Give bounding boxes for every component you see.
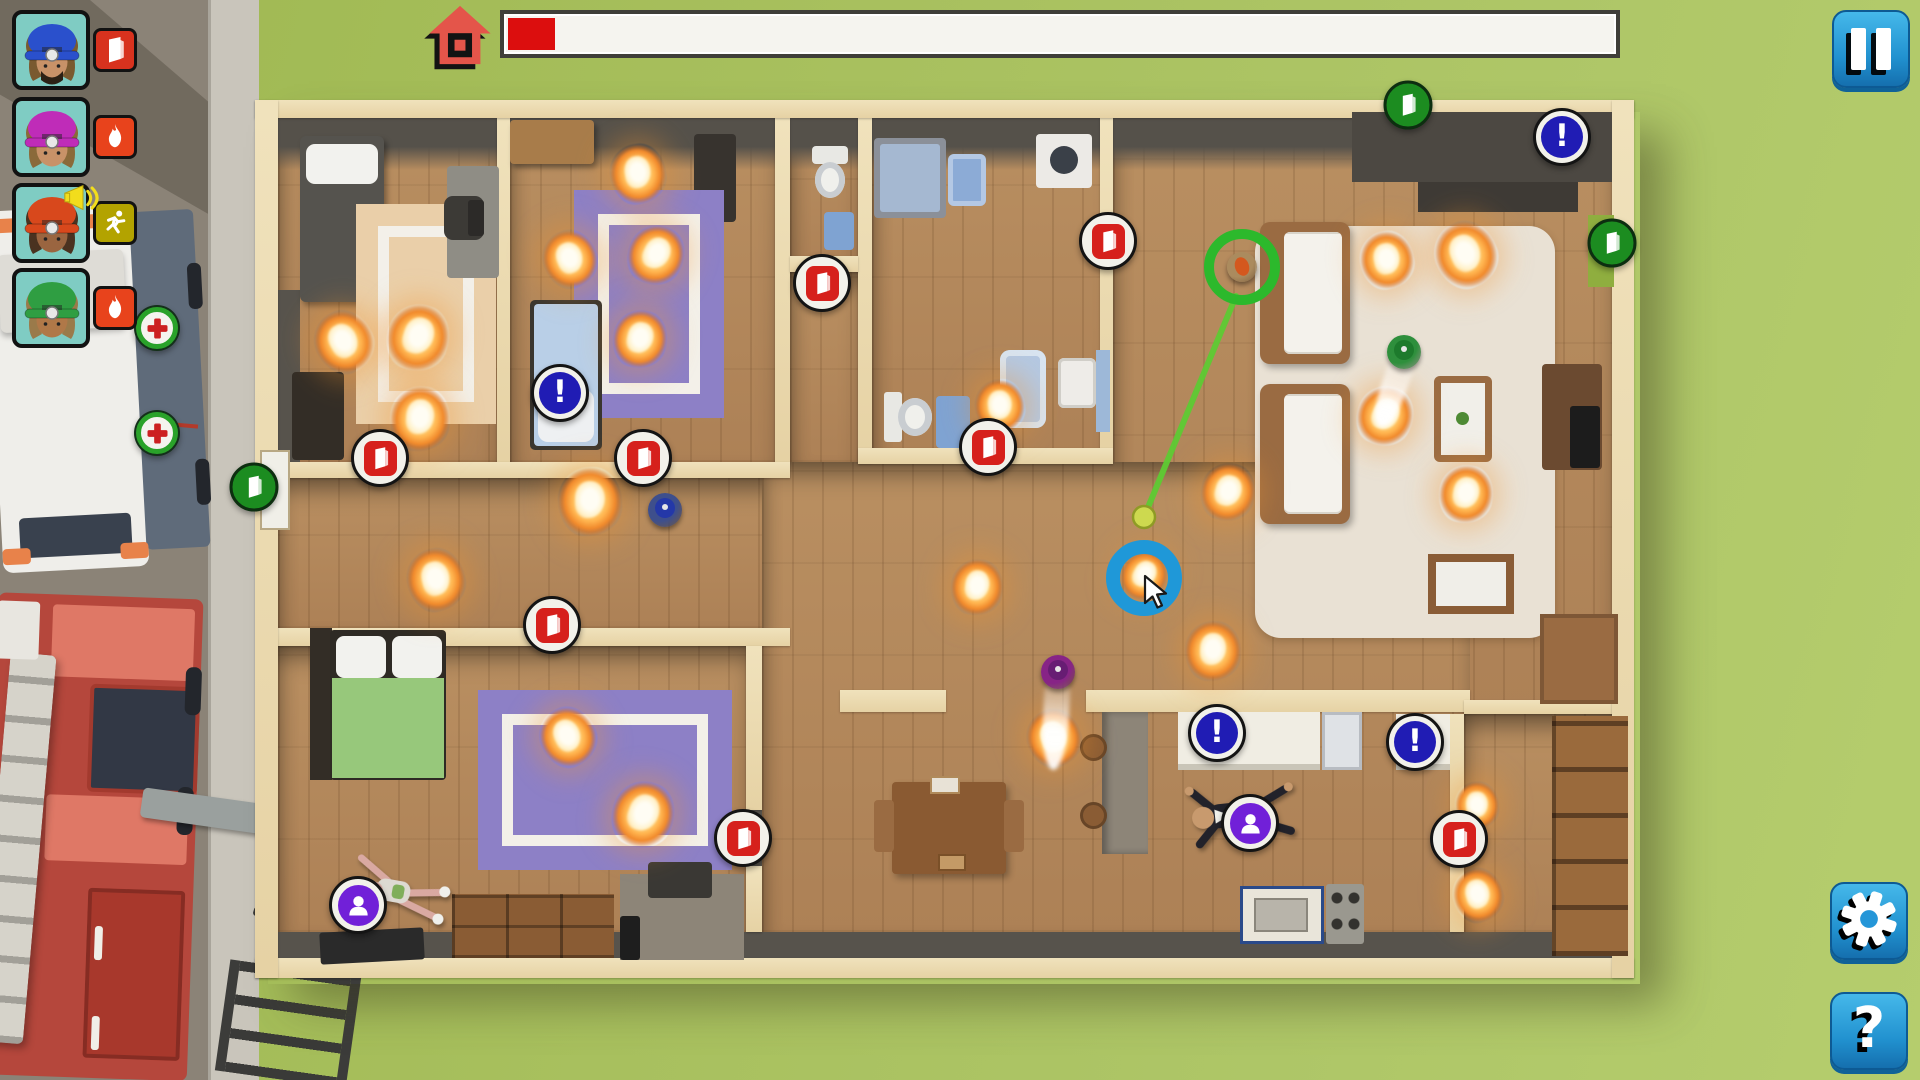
door-status-badge <box>93 28 137 72</box>
blocked-door-marker[interactable] <box>793 254 851 312</box>
pause-icon <box>1851 28 1891 70</box>
crew-portrait-4[interactable] <box>12 268 90 348</box>
ambulance-slot-marker[interactable] <box>136 307 178 349</box>
blocked-door-marker[interactable] <box>714 809 772 867</box>
crew-portrait-1[interactable] <box>12 10 90 90</box>
help-button[interactable]: ? <box>1830 992 1908 1070</box>
markers-layer: !!!! <box>0 0 1920 1080</box>
flame-status-badge <box>93 286 137 330</box>
alert-marker[interactable]: ! <box>531 364 589 422</box>
blocked-door-marker[interactable] <box>1430 810 1488 868</box>
blocked-door-marker[interactable] <box>1079 212 1137 270</box>
game-stage: !!!! <box>0 0 1920 1080</box>
alert-marker[interactable]: ! <box>1386 713 1444 771</box>
settings-button[interactable] <box>1830 882 1908 960</box>
gear-icon <box>1839 889 1899 953</box>
alert-marker[interactable]: ! <box>1533 108 1591 166</box>
victim-marker[interactable] <box>329 876 387 934</box>
level-progress-fill <box>508 18 555 50</box>
open-door-marker[interactable] <box>230 463 279 512</box>
crew-portrait-2[interactable] <box>12 97 90 177</box>
blocked-door-marker[interactable] <box>614 429 672 487</box>
open-door-marker[interactable] <box>1588 219 1637 268</box>
blocked-door-marker[interactable] <box>523 596 581 654</box>
megaphone-icon <box>62 183 104 213</box>
open-door-marker[interactable] <box>1384 81 1433 130</box>
victim-marker[interactable] <box>1221 794 1279 852</box>
alert-marker[interactable]: ! <box>1188 704 1246 762</box>
pause-button[interactable] <box>1832 10 1910 88</box>
level-progress-bar <box>500 10 1620 58</box>
house-icon <box>424 0 496 70</box>
question-icon: ? <box>1853 996 1885 1061</box>
crew-portrait-3[interactable] <box>12 183 90 263</box>
flame-status-badge <box>93 115 137 159</box>
blocked-door-marker[interactable] <box>351 429 409 487</box>
blocked-door-marker[interactable] <box>959 418 1017 476</box>
ambulance-slot-marker[interactable] <box>136 412 178 454</box>
